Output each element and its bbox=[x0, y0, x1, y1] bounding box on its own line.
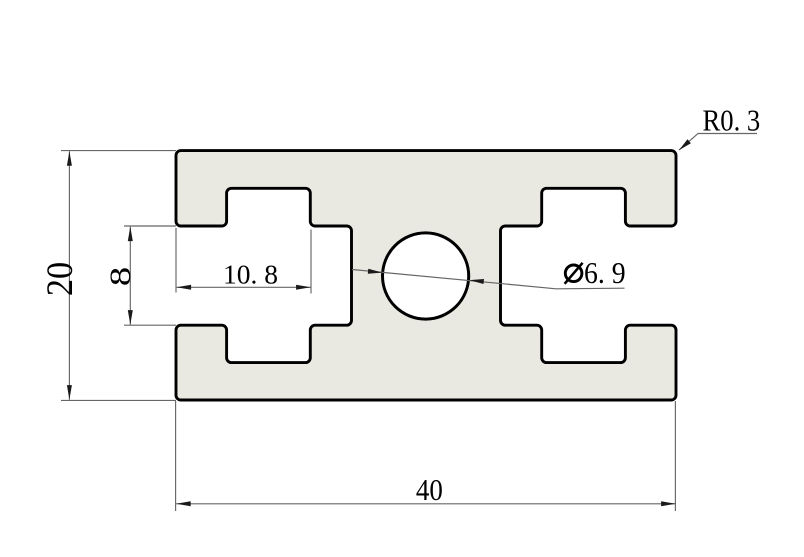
svg-text:10. 8: 10. 8 bbox=[223, 258, 278, 289]
svg-text:R0. 3: R0. 3 bbox=[703, 103, 761, 137]
svg-text:6. 9: 6. 9 bbox=[584, 257, 626, 290]
svg-text:20: 20 bbox=[39, 262, 80, 296]
svg-text:8: 8 bbox=[103, 267, 137, 286]
svg-text:40: 40 bbox=[416, 473, 443, 507]
